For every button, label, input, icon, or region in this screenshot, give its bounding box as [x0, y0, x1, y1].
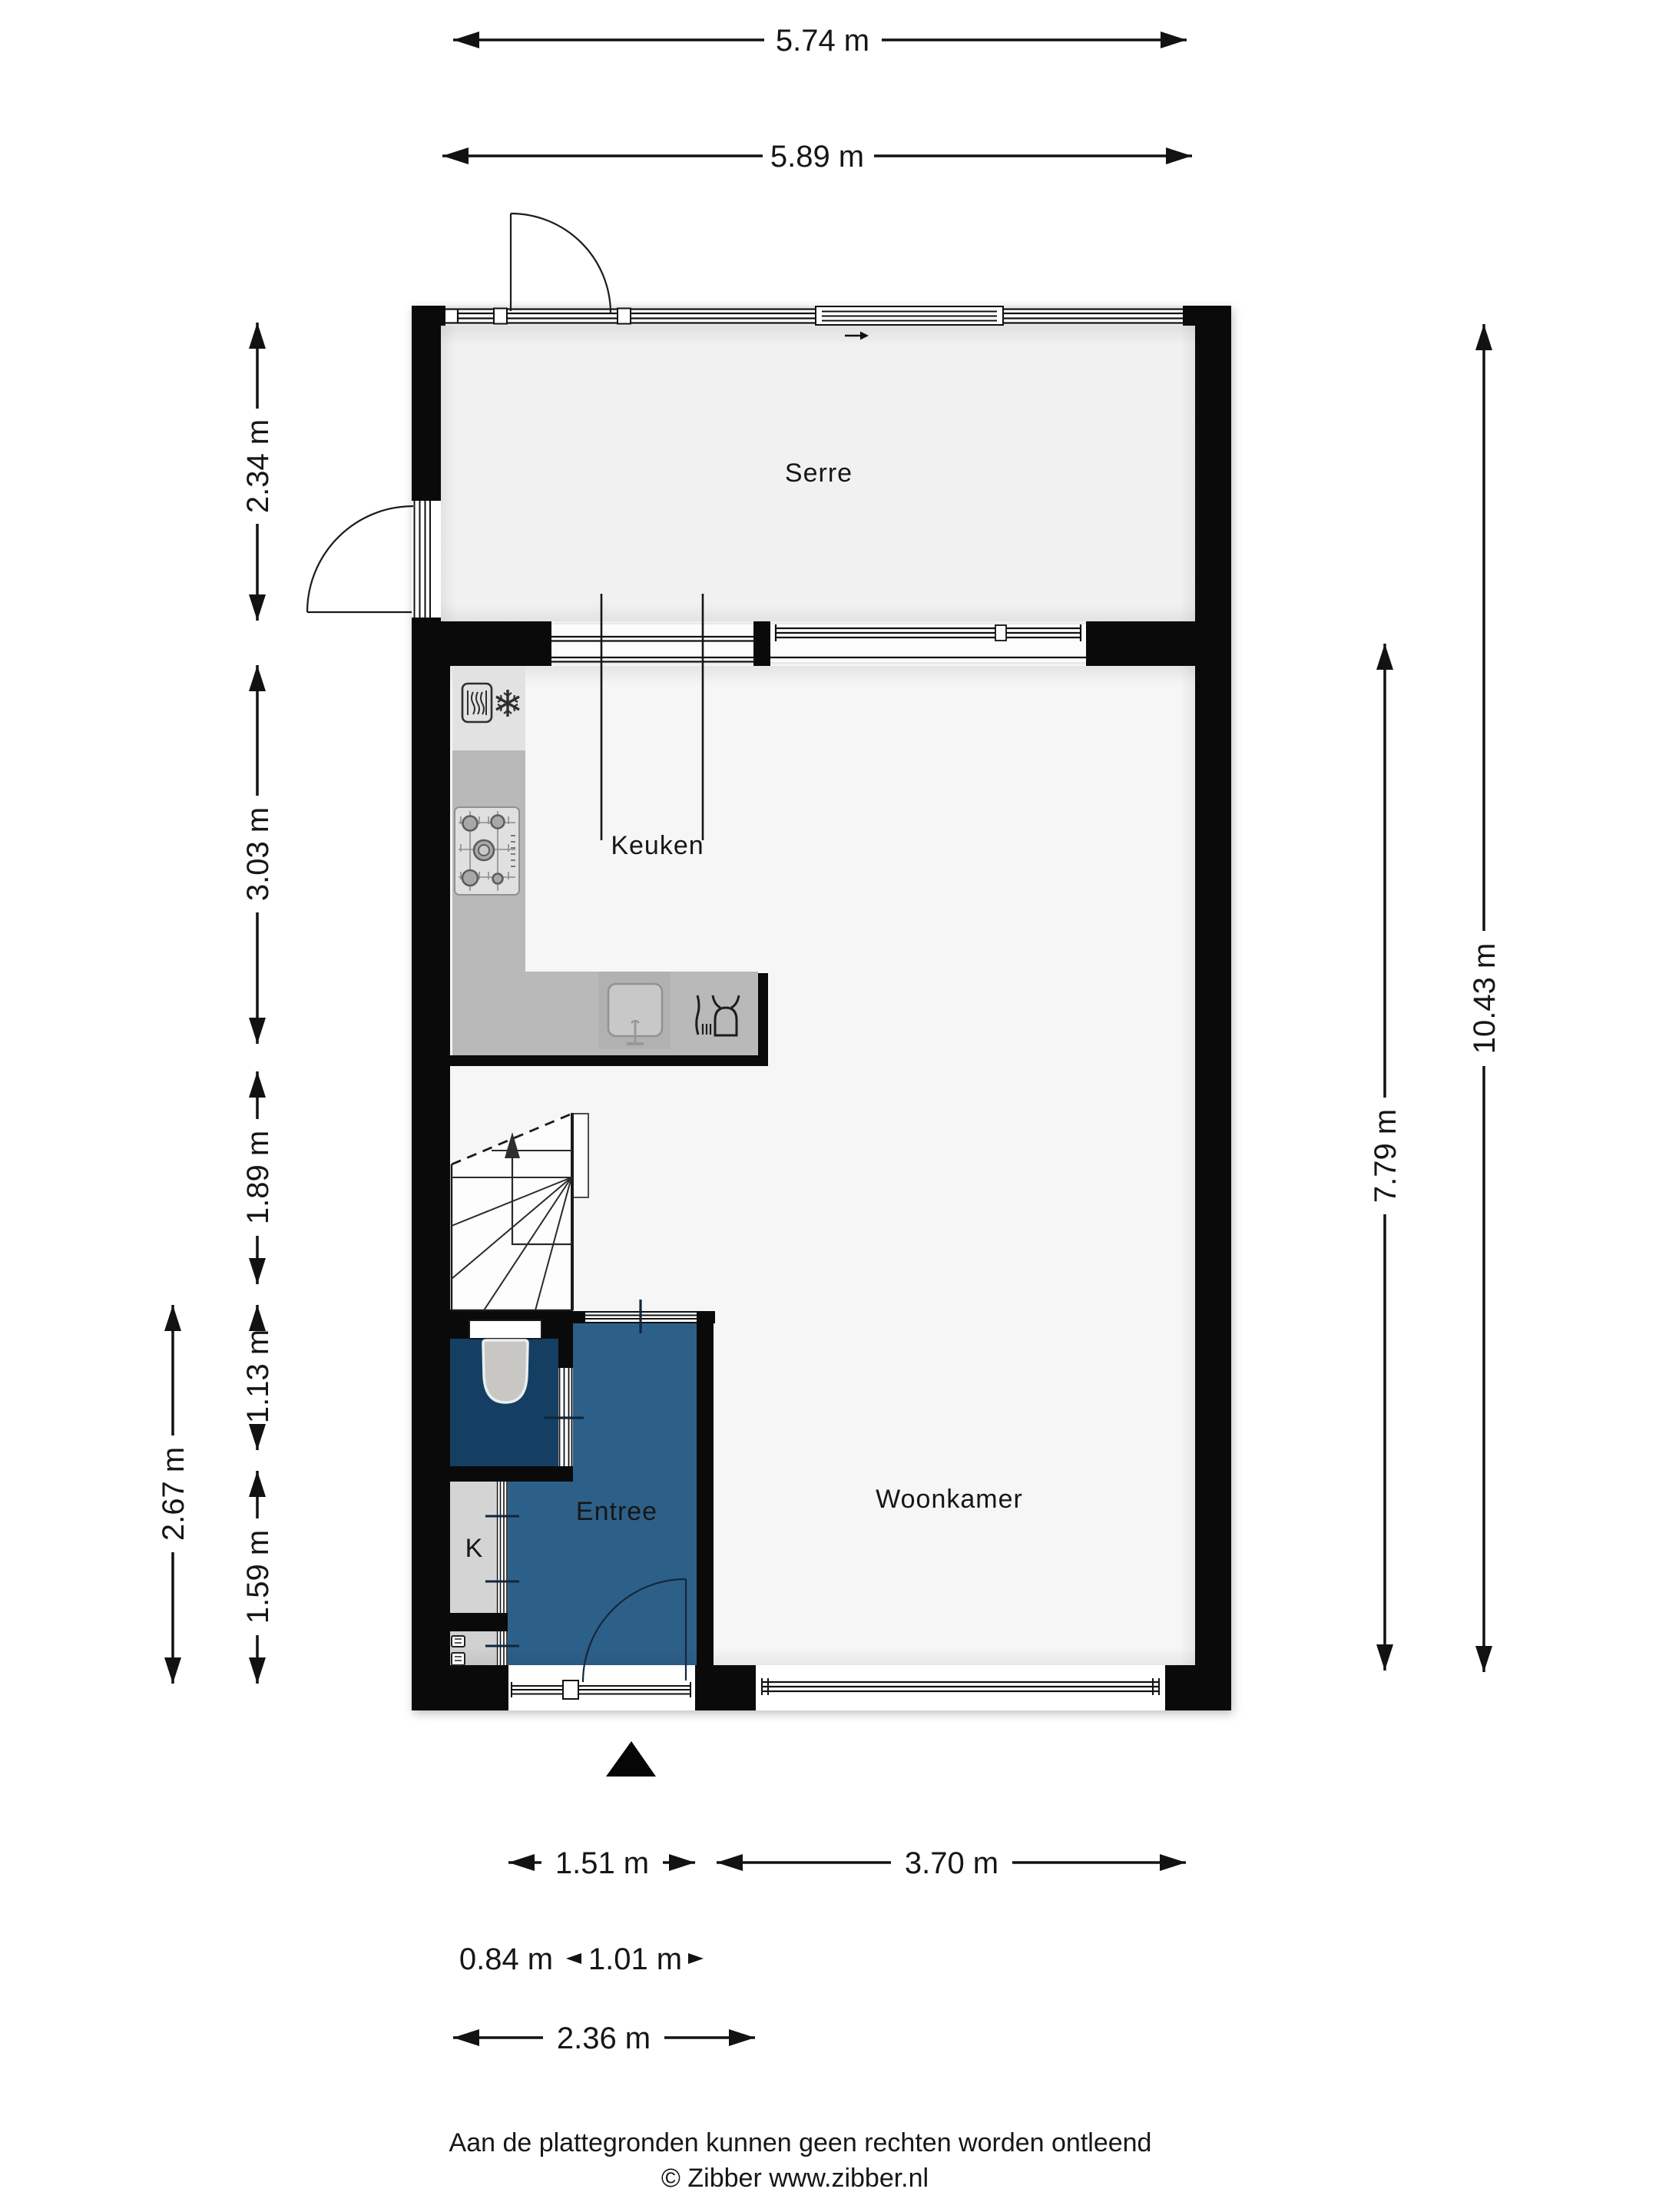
svg-text:K: K — [465, 1534, 483, 1563]
svg-text:© Zibber www.zibber.nl: © Zibber www.zibber.nl — [661, 2164, 929, 2193]
svg-text:2.67 m: 2.67 m — [157, 1447, 190, 1541]
svg-text:Serre: Serre — [785, 459, 853, 488]
svg-text:7.79 m: 7.79 m — [1369, 1109, 1402, 1203]
svg-text:2.34 m: 2.34 m — [241, 419, 275, 513]
svg-text:10.43 m: 10.43 m — [1468, 943, 1502, 1055]
svg-text:3.70 m: 3.70 m — [905, 1846, 998, 1880]
svg-text:2.36 m: 2.36 m — [557, 2022, 651, 2055]
svg-text:5.74 m: 5.74 m — [776, 24, 869, 58]
svg-text:1.13 m: 1.13 m — [241, 1330, 275, 1423]
svg-text:0.84 m: 0.84 m — [459, 1942, 553, 1976]
svg-text:1.59 m: 1.59 m — [241, 1530, 275, 1624]
svg-text:3.03 m: 3.03 m — [241, 807, 275, 901]
svg-text:Aan de plattegronden kunnen ge: Aan de plattegronden kunnen geen rechten… — [449, 2128, 1152, 2157]
svg-text:1.01 m: 1.01 m — [588, 1942, 682, 1976]
svg-text:5.89 m: 5.89 m — [770, 140, 864, 174]
svg-text:1.51 m: 1.51 m — [555, 1846, 649, 1880]
svg-text:Keuken: Keuken — [611, 831, 704, 860]
svg-text:Entree: Entree — [576, 1497, 657, 1526]
svg-text:1.89 m: 1.89 m — [241, 1131, 275, 1224]
svg-text:Woonkamer: Woonkamer — [876, 1485, 1023, 1514]
